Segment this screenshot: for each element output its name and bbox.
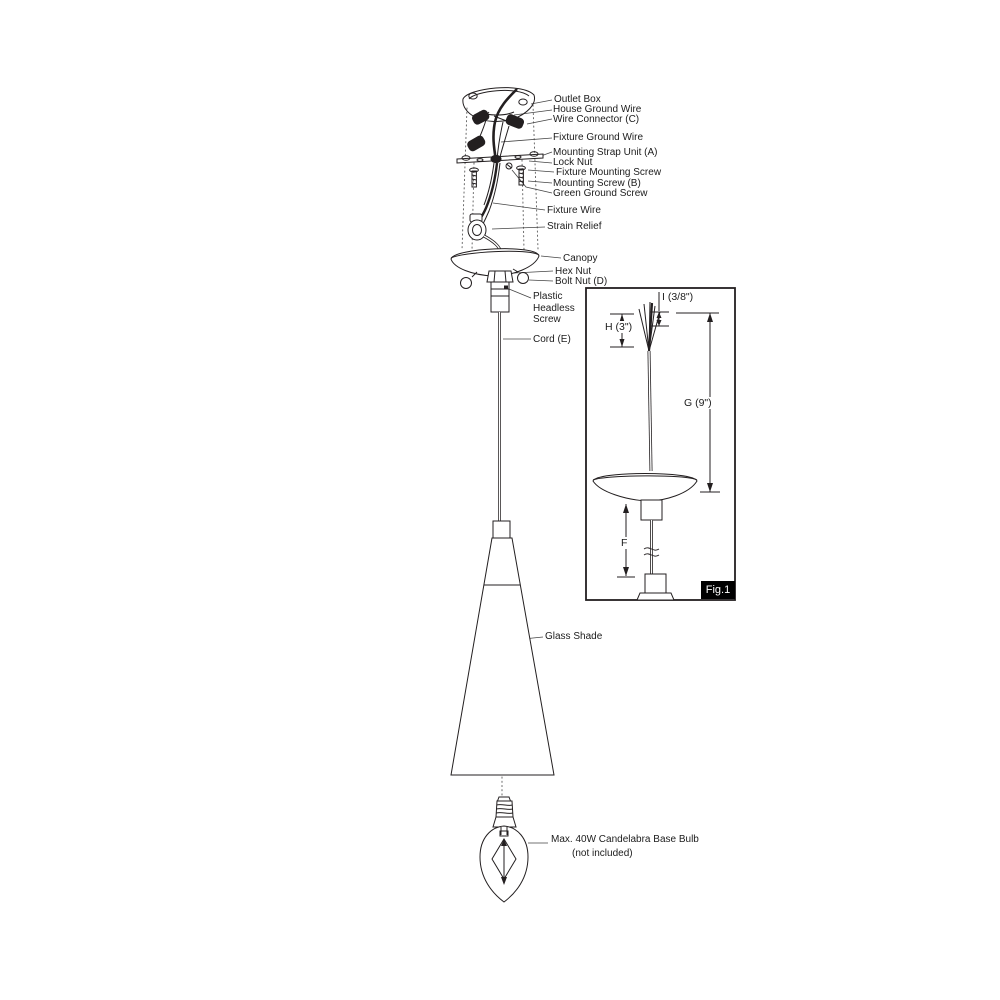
fig1-inset	[586, 288, 735, 600]
fig1-dim-label-i: I (3/8")	[661, 291, 694, 303]
callout-plastic-headless-screw: Plastic Headless Screw	[533, 291, 587, 326]
fig1-dim-label-g: G (9")	[683, 397, 713, 409]
callout-fixture-ground-wire: Fixture Ground Wire	[553, 132, 643, 144]
glass-shade-drawing	[451, 521, 554, 775]
callout-bolt-nut: Bolt Nut (D)	[555, 276, 607, 288]
callout-wire-connector: Wire Connector (C)	[553, 114, 639, 126]
callout-glass-shade: Glass Shade	[545, 631, 602, 643]
callout-fixture-mounting-screw: Fixture Mounting Screw	[556, 167, 661, 179]
callout-cord: Cord (E)	[533, 334, 571, 346]
hex-nut-drawing	[487, 271, 513, 282]
bulb-drawing	[480, 797, 528, 902]
socket-cylinder-drawing	[491, 282, 509, 312]
callout-strain-relief: Strain Relief	[547, 221, 601, 233]
bulb-note-line2: (not included)	[572, 848, 633, 860]
callout-green-ground-screw: Green Ground Screw	[553, 188, 648, 200]
pendant-light-assembly-diagram: Outlet Box House Ground Wire Wire Connec…	[0, 0, 1000, 1000]
fig1-dim-label-f: F	[620, 537, 628, 549]
fig1-caption: Fig.1	[701, 581, 735, 599]
callout-fixture-wire: Fixture Wire	[547, 205, 601, 217]
fig1-cord-upper	[649, 351, 651, 471]
diagram-line-art	[0, 0, 1000, 1000]
fig1-dim-label-h: H (3")	[604, 321, 633, 333]
callout-canopy: Canopy	[563, 253, 597, 265]
strain-relief-drawing	[468, 214, 486, 240]
bulb-note-line1: Max. 40W Candelabra Base Bulb	[551, 834, 699, 846]
